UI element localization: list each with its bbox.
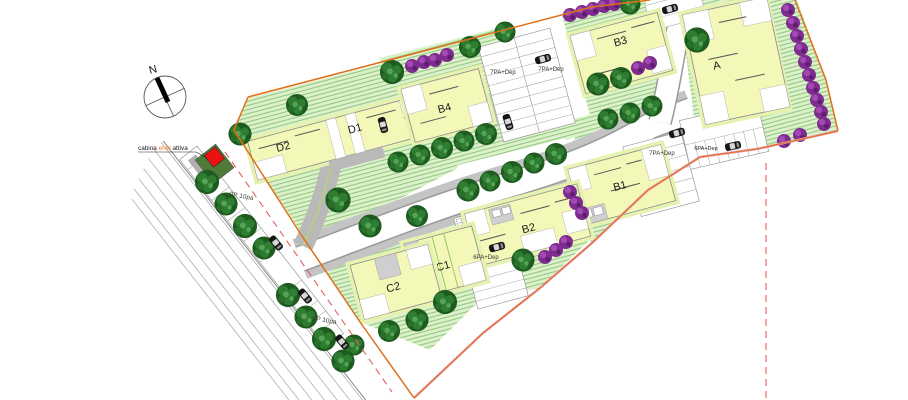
purple-tree-icon [798, 55, 812, 69]
purple-tree-icon [802, 68, 816, 82]
purple-tree-icon [440, 48, 454, 62]
compass-north-indicator: N [144, 63, 186, 118]
tree-icon [620, 103, 641, 124]
cabina-label-prefix: cabina [138, 145, 159, 152]
purple-tree-icon [806, 81, 820, 95]
tree-icon [358, 214, 381, 237]
tree-icon [642, 96, 663, 117]
site-plan-canvas: N [0, 0, 908, 400]
tree-icon [480, 171, 501, 192]
tree-icon [431, 137, 453, 159]
tree-icon [378, 320, 400, 342]
parking-label-b1: 7PA+Dep [649, 151, 675, 157]
purple-tree-icon [428, 53, 442, 67]
tree-icon [433, 290, 457, 314]
cabina-label-brand: enel [159, 145, 171, 152]
purple-tree-icon [790, 29, 804, 43]
purple-tree-icon [538, 250, 552, 264]
tree-icon [586, 72, 609, 95]
parking-label-top-left: 7PA+Dep [490, 70, 516, 76]
cabina-label-suffix: attiva [171, 145, 188, 152]
tree-icon [233, 214, 257, 238]
purple-tree-icon [814, 105, 828, 119]
tree-icon [405, 308, 428, 331]
tree-icon [475, 123, 497, 145]
tree-icon [388, 152, 409, 173]
tree-icon [524, 153, 545, 174]
site-plan-page: N [0, 0, 908, 400]
purple-tree-icon [405, 59, 419, 73]
tree-icon [380, 60, 404, 84]
purple-tree-icon [810, 93, 824, 107]
tree-icon [286, 94, 308, 116]
purple-tree-icon [643, 56, 657, 70]
parking-label-b2: 6PA+Dep [473, 255, 499, 261]
purple-tree-icon [781, 3, 795, 17]
tree-icon [276, 283, 300, 307]
purple-tree-icon [817, 117, 831, 131]
purple-tree-icon [575, 206, 589, 220]
tree-icon [195, 170, 219, 194]
cabina-label: cabina enel attiva [138, 145, 188, 152]
tree-icon [312, 327, 336, 351]
parking-label-top-right: 7PA+Dep [538, 67, 564, 73]
purple-tree-icon [631, 61, 645, 75]
tree-icon [501, 161, 523, 183]
tree-icon [410, 145, 431, 166]
tree-icon [598, 109, 619, 130]
tree-icon [545, 143, 567, 165]
compass-north-label: N [148, 63, 159, 77]
tree-icon [454, 131, 475, 152]
tree-icon [228, 122, 251, 145]
tree-icon [684, 27, 709, 52]
purple-tree-icon [563, 8, 577, 22]
tree-icon [456, 178, 479, 201]
purple-tree-icon [794, 42, 808, 56]
purple-tree-icon [786, 16, 800, 30]
tree-icon [406, 205, 428, 227]
tree-icon [610, 67, 632, 89]
tree-icon [511, 248, 534, 271]
parking-label-a: 6PA+Dep [694, 146, 717, 152]
tree-icon [325, 187, 350, 212]
